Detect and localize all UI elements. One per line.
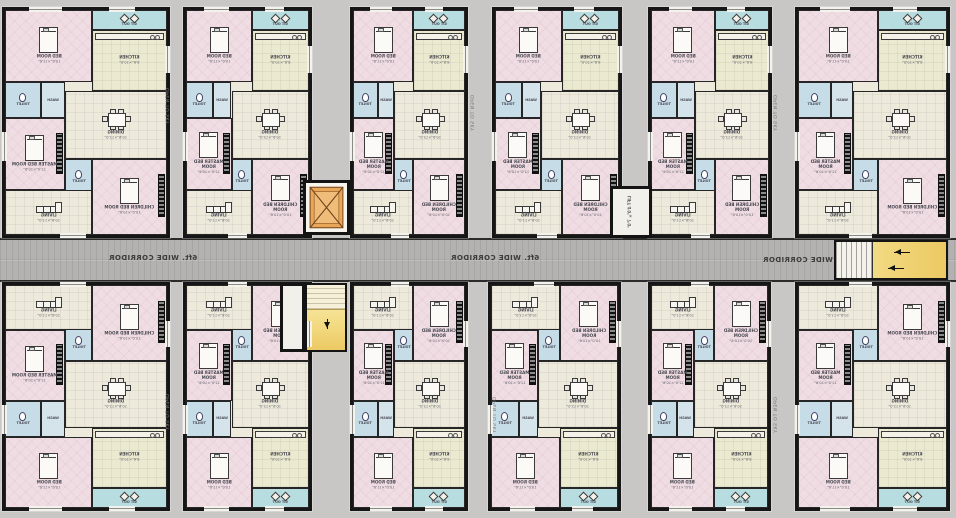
room-bedroom: BED ROOM 10'0"×11'6" <box>5 10 92 82</box>
chair-icon <box>430 492 448 500</box>
room-label: TOILET 4'6"×7'0" <box>808 421 821 425</box>
dining-table-icon <box>885 109 915 129</box>
room-label: DINING 10'6"×12'0" <box>418 400 441 409</box>
open-to-sky-label: OPEN TO SKY <box>471 95 476 131</box>
bed-icon <box>374 27 393 53</box>
stair-treads <box>836 242 873 278</box>
window-marker <box>204 7 229 12</box>
toilet-icon <box>19 93 26 102</box>
sofa-icon <box>825 201 851 213</box>
window-marker <box>307 321 312 348</box>
wardrobe-icon <box>938 301 945 344</box>
chair-icon <box>904 14 922 22</box>
apartment-unit: SIT OUT 8'0"×4'0" BED ROOM 10'0"×11'6" K… <box>350 7 468 238</box>
kitchen-counter-icon <box>881 431 944 438</box>
room-kitchen: KITCHEN 8'6"×10'0" <box>714 428 768 488</box>
room-label: CHILDREN BED ROOM 10'0"×10'6" <box>566 330 612 344</box>
wardrobe-icon <box>385 344 392 384</box>
bed-icon <box>903 304 922 330</box>
kitchen-counter-icon <box>416 431 462 438</box>
room-label: WASH <box>216 98 228 102</box>
toilet-icon <box>196 412 203 421</box>
room-bedroom: BED ROOM 10'0"×11'6" <box>353 437 413 508</box>
bed-icon <box>199 132 218 158</box>
room-label: LIVING 10'6"×11'0" <box>37 309 60 318</box>
window-marker <box>795 405 800 434</box>
lift-x-icon <box>306 183 347 232</box>
room-wash: WASH <box>378 401 395 437</box>
room-sit-out: SIT OUT 8'0"×4'0" <box>252 488 309 508</box>
room-label: DINING 10'6"×12'0" <box>569 131 592 140</box>
chair-icon <box>581 14 599 22</box>
bed-icon <box>829 453 848 479</box>
room-bedroom: BED ROOM 10'0"×11'6" <box>495 10 562 82</box>
kitchen-counter-icon <box>718 33 766 40</box>
room-dining: DINING 10'6"×12'0" <box>541 91 619 159</box>
room-label: KITCHEN 8'6"×10'0" <box>580 56 600 65</box>
apartment-unit: SIT OUT 8'0"×4'0" BED ROOM 10'0"×11'6" K… <box>2 282 170 511</box>
room-label: CHILDREN BED ROOM 10'0"×10'6" <box>888 206 938 215</box>
room-label: WASH <box>216 417 228 421</box>
room-label: BED ROOM 10'0"×11'6" <box>207 481 232 490</box>
room-label: KITCHEN 8'6"×10'0" <box>120 453 140 462</box>
room-label: DINING 10'6"×12'0" <box>889 400 912 409</box>
room-wash: WASH <box>677 82 695 118</box>
chair-icon <box>904 492 922 500</box>
dining-table-icon <box>717 109 747 129</box>
door-gap <box>537 233 557 238</box>
toilet-icon <box>19 412 26 421</box>
bed-icon <box>732 301 751 327</box>
room-sit-out: SIT OUT 8'0"×4'0" <box>92 10 167 30</box>
window-marker <box>60 282 86 287</box>
room-label: LIVING 10'6"×11'0" <box>514 309 537 318</box>
stair-arrow-icon <box>888 268 904 269</box>
room-toilet: TOILET 4'6"×7'0" <box>651 401 677 437</box>
room-label: TOILET 4'6"×7'0" <box>359 103 372 107</box>
toilet-icon <box>75 170 82 179</box>
sofa-icon <box>512 296 538 308</box>
bed-icon <box>829 27 848 53</box>
bed-icon <box>364 132 383 158</box>
toilet-icon <box>811 93 818 102</box>
room-toilet: TOILET 4'6"×7'0" <box>538 325 560 361</box>
room-bedroom: BED ROOM 10'0"×11'6" <box>798 10 878 82</box>
room-living: LIVING 10'6"×11'0" <box>798 285 878 330</box>
dining-table-icon <box>101 109 131 129</box>
chair-icon <box>272 492 290 500</box>
room-bedroom: BED ROOM 10'0"×11'6" <box>5 437 92 508</box>
room-children-bedroom: CHILDREN BED ROOM 10'0"×10'6" <box>92 159 167 236</box>
bed-icon <box>25 135 44 161</box>
room-sit-out: SIT OUT 8'0"×4'0" <box>252 10 309 30</box>
room-sit-out: SIT OUT 8'0"×4'0" <box>878 488 947 508</box>
room-label: CHILDREN BED ROOM 10'0"×10'6" <box>419 203 460 217</box>
dining-table-icon <box>563 378 593 398</box>
bed-icon <box>120 304 139 330</box>
door-gap <box>893 506 917 511</box>
room-toilet: TOILET 4'6"×7'0" <box>798 82 831 118</box>
window-marker <box>165 321 170 348</box>
room-living: LIVING 10'6"×11'0" <box>353 285 413 330</box>
bed-icon <box>663 132 682 158</box>
room-label: MASTER BED ROOM 12'0"×10'6" <box>12 163 57 172</box>
room-label: LIVING 10'6"×11'0" <box>208 309 231 318</box>
bed-icon <box>374 453 393 479</box>
kitchen-counter-icon <box>563 431 615 438</box>
wardrobe-icon <box>759 301 766 344</box>
room-label: BED ROOM 10'0"×11'6" <box>371 481 396 490</box>
room-label: LIVING 10'6"×11'0" <box>372 214 395 223</box>
window-marker <box>849 282 873 287</box>
bed-icon <box>39 453 58 479</box>
room-label: TOILET 4'6"×7'0" <box>397 179 410 183</box>
apartment-unit: SIT OUT 8'0"×4'0" BED ROOM 10'0"×11'6" K… <box>350 282 468 511</box>
bed-icon <box>25 346 44 372</box>
room-children-bedroom: CHILDREN BED ROOM 10'0"×10'6" <box>714 285 768 361</box>
room-label: CHILDREN BED ROOM 10'0"×10'6" <box>720 203 763 217</box>
room-label: DINING 10'6"×12'0" <box>259 131 282 140</box>
door-gap <box>60 233 86 238</box>
apartment-unit: SIT OUT 8'0"×4'0" BED ROOM 10'0"×11'6" K… <box>795 7 950 238</box>
wardrobe-icon <box>844 133 851 174</box>
kitchen-counter-icon <box>881 33 944 40</box>
room-label: KITCHEN 8'6"×10'0" <box>271 453 291 462</box>
wardrobe-icon <box>158 174 165 217</box>
room-bedroom: BED ROOM 10'0"×11'6" <box>651 10 715 82</box>
room-label: TOILET 4'6"×7'0" <box>16 421 29 425</box>
room-children-bedroom: CHILDREN BED ROOM 10'0"×10'6" <box>252 159 309 236</box>
window-marker <box>766 321 771 348</box>
room-master-bedroom: MASTER BED ROOM 12'0"×10'6" <box>651 118 695 190</box>
room-label: TOILET 4'6"×7'0" <box>808 103 821 107</box>
room-sit-out: SIT OUT 8'0"×4'0" <box>714 488 768 508</box>
wardrobe-icon <box>609 301 616 344</box>
door-gap <box>572 506 592 511</box>
lift-label: LIFT 4'0"×7'0" <box>629 196 634 228</box>
room-kitchen: KITCHEN 8'6"×10'0" <box>92 30 167 91</box>
room-label: TOILET 4'6"×7'0" <box>193 103 206 107</box>
room-sit-out: SIT OUT 8'0"×4'0" <box>878 10 947 30</box>
room-dining: DINING 10'6"×12'0" <box>695 91 769 159</box>
floor-plan: 6ft. WIDE CORRIDOR 6ft. WIDE CORRIDOR 6f… <box>0 0 956 518</box>
window-marker <box>2 132 7 161</box>
room-label: TOILET 4'6"×7'0" <box>657 103 670 107</box>
bed-icon <box>364 343 383 369</box>
dining-table-icon <box>565 109 595 129</box>
room-living: LIVING 10'6"×11'0" <box>5 285 92 330</box>
toilet-icon <box>75 336 82 345</box>
window-marker <box>820 7 850 12</box>
room-toilet: TOILET 4'6"×7'0" <box>853 325 878 361</box>
room-dining: DINING 10'6"×12'0" <box>232 91 309 159</box>
room-living: LIVING 10'6"×11'0" <box>186 190 252 235</box>
sofa-icon <box>36 296 62 308</box>
room-label: LIVING 10'6"×11'0" <box>37 214 60 223</box>
lift-shaft <box>280 283 305 352</box>
wardrobe-icon <box>685 344 692 384</box>
window-marker <box>183 132 188 161</box>
room-label: WASH <box>47 98 59 102</box>
toilet-icon <box>862 170 869 179</box>
room-wash: WASH <box>41 401 65 437</box>
room-label: DINING 10'6"×12'0" <box>721 131 744 140</box>
room-label: TOILET 4'6"×7'0" <box>502 103 515 107</box>
room-bedroom: BED ROOM 10'0"×11'6" <box>353 10 413 82</box>
room-sit-out: SIT OUT 8'0"×4'0" <box>560 488 618 508</box>
bed-icon <box>519 27 538 53</box>
room-label: TOILET 4'6"×7'0" <box>193 421 206 425</box>
room-label: CHILDREN BED ROOM 10'0"×10'6" <box>419 330 460 344</box>
door-gap <box>425 506 443 511</box>
dining-table-icon <box>885 378 915 398</box>
room-master-bedroom: MASTER BED ROOM 12'0"×10'6" <box>353 118 394 190</box>
window-marker <box>2 405 7 434</box>
room-label: WASH <box>836 417 848 421</box>
apartment-unit: SIT OUT 8'0"×4'0" BED ROOM 10'0"×11'6" K… <box>488 282 621 511</box>
bed-icon <box>663 343 682 369</box>
room-living: LIVING 10'6"×11'0" <box>798 190 878 235</box>
wardrobe-icon <box>223 344 230 384</box>
apartment-unit: SIT OUT 8'0"×4'0" BED ROOM 10'0"×11'6" K… <box>2 7 170 238</box>
room-bedroom: BED ROOM 10'0"×11'6" <box>651 437 714 508</box>
window-marker <box>307 46 312 73</box>
window-marker <box>165 46 170 73</box>
dining-table-icon <box>255 109 285 129</box>
room-label: BED ROOM 10'0"×11'6" <box>670 481 695 490</box>
room-label: KITCHEN 8'6"×10'0" <box>732 56 752 65</box>
room-label: MASTER BED ROOM 12'0"×10'6" <box>191 372 227 386</box>
room-label: BED ROOM 10'0"×11'6" <box>516 55 541 64</box>
window-marker <box>767 46 772 73</box>
room-toilet: TOILET 4'6"×7'0" <box>353 401 378 437</box>
wardrobe-icon <box>158 301 165 344</box>
bed-icon <box>816 132 835 158</box>
room-sit-out: SIT OUT 8'0"×4'0" <box>413 10 465 30</box>
room-label: WASH <box>380 98 392 102</box>
room-label: LIVING 10'6"×11'0" <box>517 214 540 223</box>
window-marker <box>727 7 746 12</box>
door-gap <box>849 233 873 238</box>
window-marker <box>893 7 917 12</box>
bed-icon <box>581 175 600 201</box>
kitchen-counter-icon <box>565 33 616 40</box>
room-label: KITCHEN 8'6"×10'0" <box>271 56 291 65</box>
toilet-icon <box>660 412 667 421</box>
dining-table-icon <box>415 109 445 129</box>
toilet-icon <box>505 93 512 102</box>
open-to-sky-label: OPEN TO SKY <box>493 397 498 433</box>
open-to-sky-label: OPEN TO SKY <box>774 95 779 131</box>
room-kitchen: KITCHEN 8'6"×10'0" <box>878 30 947 91</box>
corridor: 6ft. WIDE CORRIDOR 6ft. WIDE CORRIDOR 6f… <box>0 238 956 282</box>
room-toilet: TOILET 4'6"×7'0" <box>495 82 522 118</box>
room-label: LIVING 10'6"×11'0" <box>672 214 695 223</box>
door-gap <box>109 506 135 511</box>
kitchen-counter-icon <box>416 33 462 40</box>
room-label: TOILET 4'6"×7'0" <box>16 103 29 107</box>
staircase-right <box>834 240 948 280</box>
room-label: WASH <box>680 417 692 421</box>
room-label: TOILET 4'6"×7'0" <box>859 345 872 349</box>
bed-icon <box>816 343 835 369</box>
room-kitchen: KITCHEN 8'6"×10'0" <box>413 30 465 91</box>
room-label: LIVING 10'6"×11'0" <box>671 309 694 318</box>
room-toilet: TOILET 4'6"×7'0" <box>651 82 677 118</box>
sofa-icon <box>206 201 232 213</box>
bed-icon <box>505 343 524 369</box>
room-label: BED ROOM 10'0"×11'6" <box>513 481 538 490</box>
room-label: TOILET 4'6"×7'0" <box>542 345 555 349</box>
window-marker <box>370 7 392 12</box>
room-label: KITCHEN 8'6"×10'0" <box>731 453 751 462</box>
room-label: BED ROOM 10'0"×11'6" <box>371 55 396 64</box>
window-marker <box>534 282 554 287</box>
kitchen-counter-icon <box>717 431 765 438</box>
apartment-unit: SIT OUT 8'0"×4'0" BED ROOM 10'0"×11'6" K… <box>648 7 772 238</box>
room-label: MASTER BED ROOM 12'0"×10'6" <box>804 372 848 386</box>
room-label: WASH <box>47 417 59 421</box>
wardrobe-icon <box>686 133 693 174</box>
room-label: WASH <box>380 417 392 421</box>
room-label: TOILET 4'6"×7'0" <box>498 421 511 425</box>
sofa-icon <box>370 296 396 308</box>
window-marker <box>425 7 443 12</box>
corridor-label: 6ft. WIDE CORRIDOR <box>430 254 560 262</box>
wardrobe-icon <box>456 301 463 344</box>
room-label: TOILET 4'6"×7'0" <box>545 179 558 183</box>
room-label: CHILDREN BED ROOM 10'0"×10'6" <box>258 203 303 217</box>
stair-arrow-icon <box>327 319 328 329</box>
room-label: TOILET 4'6"×7'0" <box>698 345 711 349</box>
wardrobe-icon <box>938 174 945 217</box>
sofa-icon <box>825 296 851 308</box>
room-master-bedroom: MASTER BED ROOM 12'0"×10'6" <box>491 330 538 401</box>
room-label: DINING 10'6"×12'0" <box>259 400 282 409</box>
room-label: DINING 10'6"×12'0" <box>418 131 441 140</box>
bed-icon <box>430 301 449 327</box>
apartment-unit: SIT OUT 8'0"×4'0" BED ROOM 10'0"×11'6" K… <box>183 7 312 238</box>
window-marker <box>795 132 800 161</box>
dining-table-icon <box>415 378 445 398</box>
room-kitchen: KITCHEN 8'6"×10'0" <box>413 428 465 488</box>
window-marker <box>574 7 594 12</box>
room-dining: DINING 10'6"×12'0" <box>394 91 465 159</box>
room-dining: DINING 10'6"×12'0" <box>65 361 167 428</box>
room-master-bedroom: MASTER BED ROOM 12'0"×10'6" <box>651 330 694 401</box>
room-label: WASH <box>523 417 535 421</box>
window-marker <box>945 321 950 348</box>
room-label: LIVING 10'6"×11'0" <box>827 309 850 318</box>
room-kitchen: KITCHEN 8'6"×10'0" <box>562 30 619 91</box>
room-label: MASTER BED ROOM 12'0"×10'6" <box>191 161 227 175</box>
room-kitchen: KITCHEN 8'6"×10'0" <box>92 428 167 488</box>
room-master-bedroom: MASTER BED ROOM 12'0"×10'6" <box>5 330 65 401</box>
room-label: BED ROOM 10'0"×11'6" <box>826 55 851 64</box>
chair-icon <box>732 492 750 500</box>
chair-icon <box>580 492 598 500</box>
dining-table-icon <box>716 378 746 398</box>
room-dining: DINING 10'6"×12'0" <box>853 91 947 159</box>
wardrobe-icon <box>385 133 392 174</box>
room-children-bedroom: CHILDREN BED ROOM 10'0"×10'6" <box>413 285 465 361</box>
toilet-icon <box>701 170 708 179</box>
room-label: MASTER BED ROOM 12'0"×10'6" <box>500 161 536 175</box>
wardrobe-icon <box>56 344 63 384</box>
chair-icon <box>121 14 139 22</box>
room-label: DINING 10'6"×12'0" <box>567 400 590 409</box>
room-label: CHILDREN BED ROOM 10'0"×10'6" <box>105 206 155 215</box>
toilet-icon <box>362 93 369 102</box>
window-marker <box>691 282 710 287</box>
toilet-icon <box>196 93 203 102</box>
window-marker <box>29 7 61 12</box>
toilet-icon <box>501 412 508 421</box>
room-label: TOILET 4'6"×7'0" <box>397 345 410 349</box>
room-label: CHILDREN BED ROOM 10'0"×10'6" <box>568 203 613 217</box>
sofa-icon <box>206 296 232 308</box>
window-marker <box>463 321 468 348</box>
bed-icon <box>732 175 751 201</box>
room-label: KITCHEN 8'6"×10'0" <box>903 453 923 462</box>
room-label: TOILET 4'6"×7'0" <box>235 179 248 183</box>
door-gap <box>726 506 745 511</box>
room-toilet: TOILET 4'6"×7'0" <box>694 325 714 361</box>
room-label: CHILDREN BED ROOM 10'0"×10'6" <box>888 332 938 341</box>
room-toilet: TOILET 4'6"×7'0" <box>394 325 413 361</box>
room-sit-out: SIT OUT 8'0"×4'0" <box>715 10 769 30</box>
room-dining: DINING 10'6"×12'0" <box>394 361 465 428</box>
bed-icon <box>120 178 139 204</box>
window-marker <box>648 405 653 434</box>
window-marker <box>350 405 355 434</box>
toilet-icon <box>811 412 818 421</box>
chair-icon <box>430 14 448 22</box>
room-label: KITCHEN 8'6"×10'0" <box>429 453 449 462</box>
door-gap <box>265 506 285 511</box>
door-gap <box>691 233 710 238</box>
bed-icon <box>903 178 922 204</box>
window-marker <box>488 405 493 434</box>
room-wash: WASH <box>677 401 695 437</box>
room-master-bedroom: MASTER BED ROOM 12'0"×10'6" <box>353 330 394 401</box>
bed-icon <box>516 453 535 479</box>
room-children-bedroom: CHILDREN BED ROOM 10'0"×10'6" <box>413 159 465 236</box>
room-wash: WASH <box>522 82 541 118</box>
room-sit-out: SIT OUT 8'0"×4'0" <box>413 488 465 508</box>
room-label: DINING 10'6"×12'0" <box>105 400 128 409</box>
room-master-bedroom: MASTER BED ROOM 12'0"×10'6" <box>186 330 232 401</box>
room-wash: WASH <box>378 82 395 118</box>
room-label: BED ROOM 10'0"×11'6" <box>670 55 695 64</box>
window-marker <box>228 282 248 287</box>
apartment-unit: SIT OUT 8'0"×4'0" BED ROOM 10'0"×11'6" K… <box>492 7 622 238</box>
room-label: TOILET 4'6"×7'0" <box>859 179 872 183</box>
dining-table-icon <box>101 378 131 398</box>
open-to-sky-label: OPEN TO SKY <box>166 88 171 124</box>
wardrobe-icon <box>529 344 536 384</box>
door-gap <box>29 506 61 511</box>
room-bedroom: BED ROOM 10'0"×11'6" <box>186 437 252 508</box>
room-living: LIVING 10'6"×11'0" <box>353 190 413 235</box>
room-wash: WASH <box>519 401 538 437</box>
room-dining: DINING 10'6"×12'0" <box>538 361 618 428</box>
room-living: LIVING 10'6"×11'0" <box>5 190 92 235</box>
room-living: LIVING 10'6"×11'0" <box>651 190 715 235</box>
window-marker <box>669 7 693 12</box>
bed-icon <box>199 343 218 369</box>
room-label: TOILET 4'6"×7'0" <box>359 421 372 425</box>
